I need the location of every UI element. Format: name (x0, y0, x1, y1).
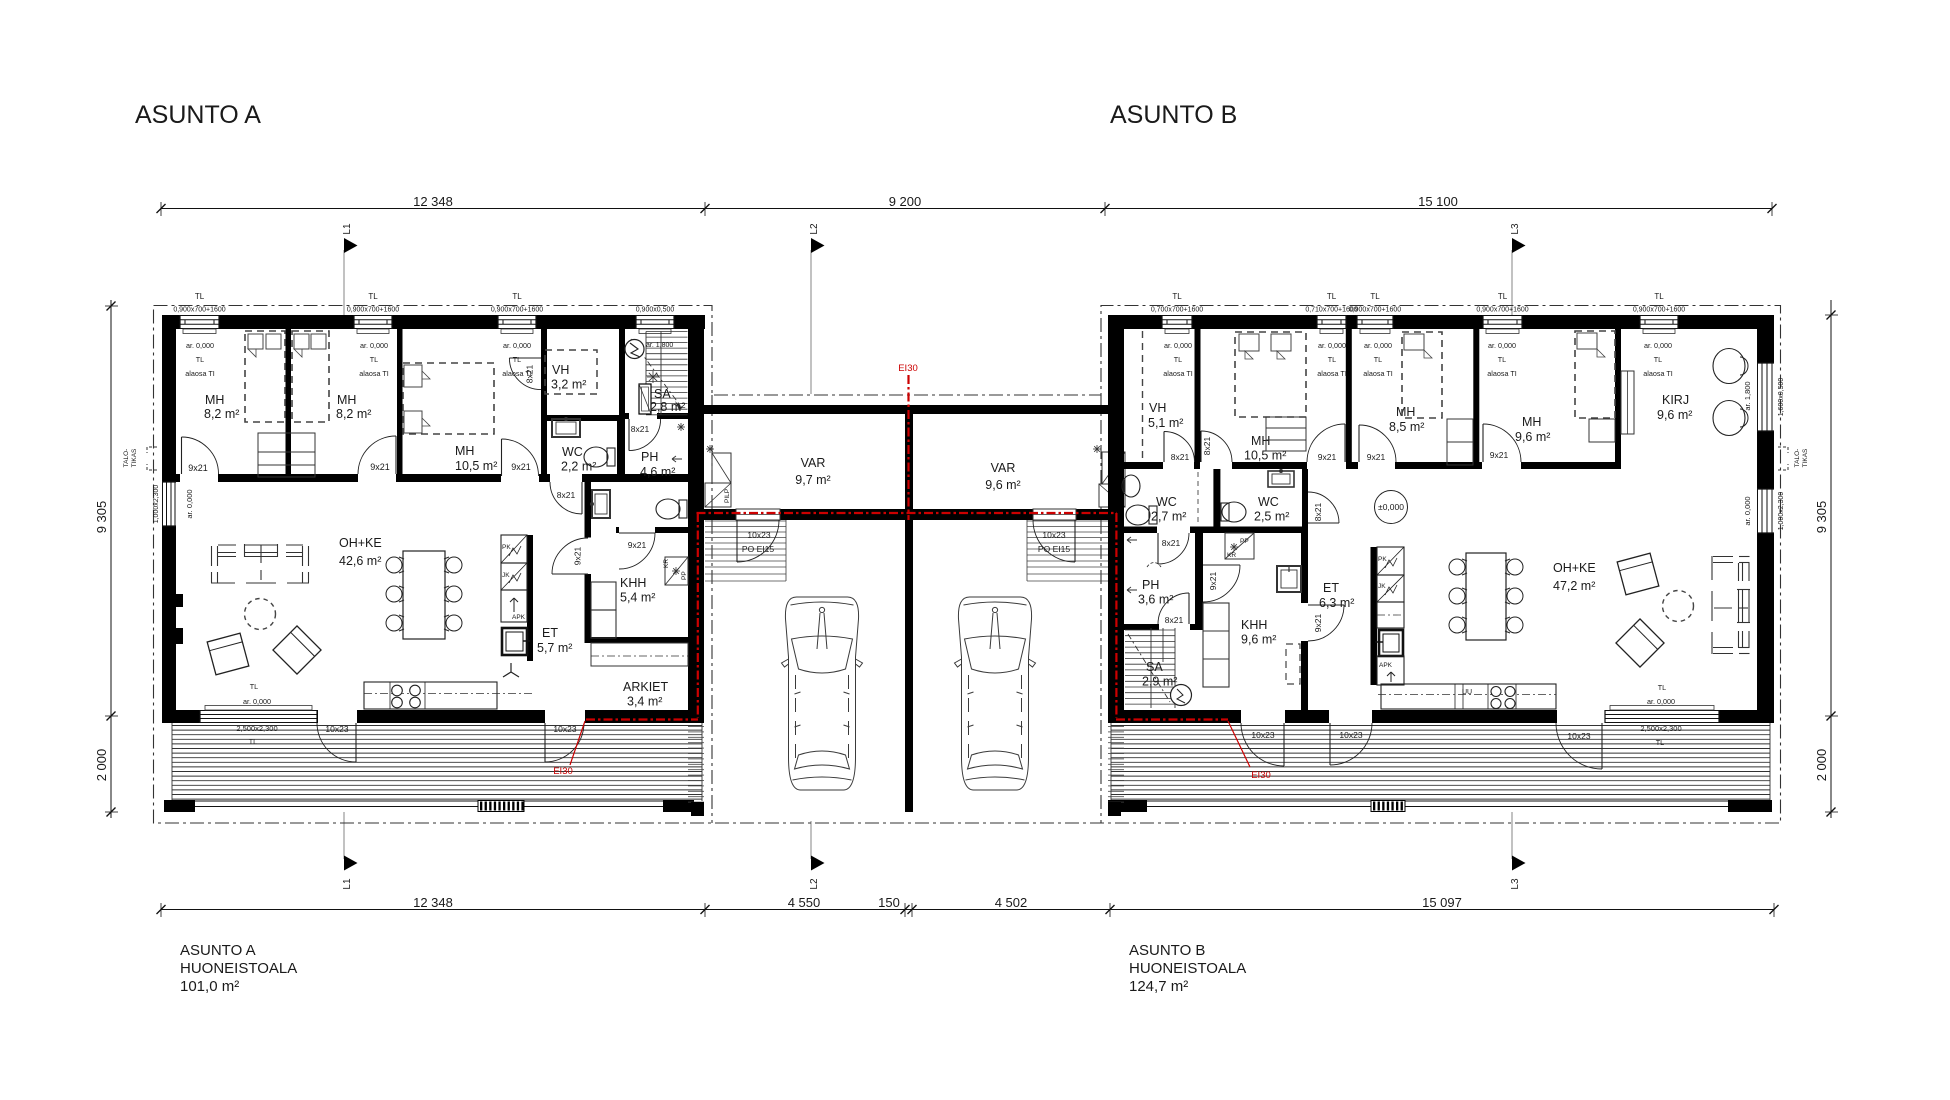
svg-text:9x21: 9x21 (1313, 614, 1323, 633)
svg-text:42,6 m²: 42,6 m² (339, 554, 381, 568)
svg-text:PP: PP (681, 571, 688, 580)
svg-text:L1: L1 (342, 878, 353, 890)
svg-text:MH: MH (205, 393, 224, 407)
svg-text:ar. 0,000: ar. 0,000 (1644, 341, 1672, 350)
svg-text:0,900x0,500: 0,900x0,500 (636, 307, 675, 314)
svg-text:5,7 m²: 5,7 m² (537, 641, 572, 655)
svg-text:2,9 m²: 2,9 m² (1142, 675, 1177, 689)
svg-text:6,3 m²: 6,3 m² (1319, 596, 1354, 610)
svg-text:SA: SA (654, 387, 671, 401)
svg-text:VAR: VAR (991, 461, 1016, 475)
svg-text:PH: PH (641, 450, 658, 464)
svg-text:ar. 1,800: ar. 1,800 (1743, 381, 1752, 410)
svg-text:4,6 m²: 4,6 m² (640, 465, 675, 479)
svg-text:10,5 m²: 10,5 m² (455, 459, 497, 473)
svg-text:9x21: 9x21 (511, 462, 531, 472)
svg-text:9x21: 9x21 (573, 547, 583, 566)
svg-text:WC: WC (1156, 495, 1177, 509)
svg-text:9x21: 9x21 (188, 463, 208, 473)
svg-text:TIKAS: TIKAS (131, 448, 138, 467)
svg-text:PILP: PILP (724, 489, 731, 503)
svg-text:TL: TL (1656, 738, 1664, 747)
svg-text:WC: WC (562, 445, 583, 459)
svg-text:8,5 m²: 8,5 m² (1389, 420, 1424, 434)
svg-text:8x21: 8x21 (557, 490, 576, 500)
svg-text:0,900x700+1600: 0,900x700+1600 (173, 307, 225, 314)
svg-text:TL: TL (512, 292, 522, 301)
svg-text:TL: TL (195, 292, 205, 301)
svg-text:TL: TL (368, 292, 378, 301)
svg-text:UU: UU (1462, 689, 1472, 696)
svg-text:4 502: 4 502 (995, 895, 1028, 910)
svg-text:OH+KE: OH+KE (339, 536, 382, 550)
svg-text:TL: TL (370, 355, 378, 364)
svg-text:ar. 0,000: ar. 0,000 (243, 697, 271, 706)
svg-text:8,2 m²: 8,2 m² (204, 407, 239, 421)
svg-text:9,6 m²: 9,6 m² (1515, 430, 1550, 444)
svg-text:PK: PK (502, 544, 511, 551)
svg-text:2 000: 2 000 (1814, 749, 1829, 782)
svg-text:8x21: 8x21 (1171, 452, 1190, 462)
svg-text:124,7 m²: 124,7 m² (1129, 978, 1188, 995)
svg-text:PP: PP (1240, 538, 1249, 545)
svg-text:ar. 0,000: ar. 0,000 (1488, 341, 1516, 350)
svg-text:APK: APK (512, 614, 526, 621)
svg-text:TL: TL (1498, 292, 1508, 301)
svg-text:9x21: 9x21 (1490, 450, 1509, 460)
svg-text:0,900x700+1600: 0,900x700+1600 (1349, 307, 1401, 314)
svg-text:5,1 m²: 5,1 m² (1148, 416, 1183, 430)
svg-text:TL: TL (1174, 355, 1182, 364)
svg-text:9,6 m²: 9,6 m² (985, 478, 1020, 492)
svg-text:alaosa TI: alaosa TI (359, 369, 388, 378)
svg-text:alaosa TI: alaosa TI (1643, 369, 1672, 378)
svg-text:ar. 0,000: ar. 0,000 (1647, 697, 1675, 706)
svg-text:3,4 m²: 3,4 m² (627, 695, 662, 709)
svg-text:0,700x700+1600: 0,700x700+1600 (1151, 307, 1203, 314)
svg-text:ar. 0,000: ar. 0,000 (1164, 341, 1192, 350)
svg-text:2,500x2,300: 2,500x2,300 (1640, 724, 1681, 733)
svg-text:ar. 0,000: ar. 0,000 (1743, 496, 1752, 525)
svg-text:2 000: 2 000 (94, 749, 109, 782)
svg-text:9x21: 9x21 (1367, 452, 1386, 462)
svg-text:WC: WC (1258, 495, 1279, 509)
svg-text:ASUNTO A: ASUNTO A (180, 942, 256, 959)
svg-text:ET: ET (542, 626, 558, 640)
svg-text:8,2 m²: 8,2 m² (336, 407, 371, 421)
svg-text:8x21: 8x21 (1202, 437, 1212, 456)
svg-text:JK: JK (1378, 583, 1386, 590)
svg-text:15 097: 15 097 (1422, 895, 1462, 910)
svg-text:ar. 0,000: ar. 0,000 (1364, 341, 1392, 350)
svg-text:0,900x700+1600: 0,900x700+1600 (1476, 307, 1528, 314)
svg-text:ASUNTO A: ASUNTO A (135, 101, 261, 129)
svg-text:VH: VH (1149, 401, 1166, 415)
svg-text:KHH: KHH (1241, 618, 1267, 632)
svg-text:MH: MH (1522, 415, 1541, 429)
svg-text:PK: PK (1378, 556, 1387, 563)
svg-text:L1: L1 (342, 223, 353, 235)
svg-text:EI30: EI30 (1251, 770, 1271, 781)
svg-text:L2: L2 (809, 223, 820, 235)
svg-text:10x23: 10x23 (747, 530, 770, 540)
svg-text:ARKIET: ARKIET (623, 680, 669, 694)
svg-text:ar. 0,000: ar. 0,000 (186, 341, 214, 350)
svg-text:KHH: KHH (620, 576, 646, 590)
svg-text:1,600x0,500: 1,600x0,500 (1778, 378, 1785, 417)
svg-text:TL: TL (1327, 292, 1337, 301)
svg-text:L3: L3 (1510, 878, 1521, 890)
svg-text:ar. 0,000: ar. 0,000 (1318, 341, 1346, 350)
svg-text:8x21: 8x21 (1165, 615, 1184, 625)
svg-text:TL: TL (1172, 292, 1182, 301)
svg-text:TL: TL (196, 355, 204, 364)
svg-text:9,6 m²: 9,6 m² (1241, 633, 1276, 647)
svg-text:1,000x2,300: 1,000x2,300 (1778, 492, 1785, 531)
svg-text:10x23: 10x23 (1567, 731, 1590, 741)
svg-text:ar. 0,000: ar. 0,000 (185, 489, 194, 518)
svg-text:TL: TL (513, 355, 521, 364)
svg-text:EI30: EI30 (553, 766, 573, 777)
svg-text:MH: MH (455, 444, 474, 458)
svg-text:9x21: 9x21 (370, 462, 390, 472)
svg-text:TL: TL (1498, 355, 1506, 364)
svg-text:alaosa TI: alaosa TI (185, 369, 214, 378)
svg-text:9,6 m²: 9,6 m² (1657, 408, 1692, 422)
svg-text:TL: TL (250, 682, 258, 691)
svg-text:VH: VH (552, 363, 569, 377)
svg-text:±0,000: ±0,000 (1378, 502, 1404, 512)
svg-text:HUONEISTOALA: HUONEISTOALA (1129, 960, 1246, 977)
svg-text:0,900x700+1600: 0,900x700+1600 (347, 307, 399, 314)
svg-text:12 348: 12 348 (413, 895, 453, 910)
svg-text:5,4 m²: 5,4 m² (620, 591, 655, 605)
svg-text:JK: JK (502, 572, 510, 579)
svg-text:TL: TL (1374, 355, 1382, 364)
svg-text:3,2 m²: 3,2 m² (551, 378, 586, 392)
svg-text:TL: TL (1654, 292, 1664, 301)
svg-text:alaosa TI: alaosa TI (1317, 369, 1346, 378)
svg-text:8x21: 8x21 (631, 424, 650, 434)
svg-text:47,2 m²: 47,2 m² (1553, 579, 1595, 593)
svg-text:2,8 m²: 2,8 m² (650, 400, 685, 414)
svg-text:0,900x700+1600: 0,900x700+1600 (1633, 307, 1685, 314)
svg-text:PO EI15: PO EI15 (1038, 544, 1070, 554)
svg-text:9 305: 9 305 (94, 501, 109, 534)
svg-text:PH: PH (1142, 578, 1159, 592)
svg-text:101,0 m²: 101,0 m² (180, 978, 239, 995)
svg-text:alaosa TI: alaosa TI (502, 369, 531, 378)
svg-text:ar. 0,000: ar. 0,000 (360, 341, 388, 350)
svg-text:SA: SA (1146, 660, 1163, 674)
svg-text:OH+KE: OH+KE (1553, 561, 1596, 575)
svg-text:10x23: 10x23 (1251, 730, 1274, 740)
svg-text:TL: TL (1654, 355, 1662, 364)
svg-text:alaosa TI: alaosa TI (1163, 369, 1192, 378)
svg-text:3,6 m²: 3,6 m² (1138, 593, 1173, 607)
svg-text:1,000x2,300: 1,000x2,300 (153, 485, 160, 524)
svg-text:0,900x700+1600: 0,900x700+1600 (491, 307, 543, 314)
svg-text:KR: KR (663, 559, 670, 568)
svg-text:150: 150 (878, 895, 900, 910)
svg-text:8x21: 8x21 (1313, 503, 1323, 522)
svg-text:ASUNTO B: ASUNTO B (1110, 101, 1237, 129)
svg-text:2,7 m²: 2,7 m² (1151, 510, 1186, 524)
svg-text:TALO-: TALO- (1794, 449, 1801, 468)
svg-text:TL: TL (249, 737, 257, 746)
svg-text:TL: TL (1370, 292, 1380, 301)
svg-text:10x23: 10x23 (553, 724, 576, 734)
svg-text:TL: TL (1658, 683, 1666, 692)
svg-text:EI30: EI30 (898, 363, 918, 374)
svg-text:9x21: 9x21 (1318, 452, 1337, 462)
svg-text:KR: KR (1227, 552, 1236, 559)
svg-text:L2: L2 (809, 878, 820, 890)
svg-text:2,5 m²: 2,5 m² (1254, 510, 1289, 524)
svg-text:TALO-: TALO- (123, 449, 130, 468)
svg-text:15 100: 15 100 (1418, 194, 1458, 209)
svg-text:MH: MH (1396, 405, 1415, 419)
svg-text:MH: MH (1251, 434, 1270, 448)
svg-text:ASUNTO B: ASUNTO B (1129, 942, 1205, 959)
svg-text:4 550: 4 550 (788, 895, 821, 910)
svg-text:PO EI15: PO EI15 (742, 544, 774, 554)
svg-text:ar. 0,000: ar. 0,000 (503, 341, 531, 350)
svg-text:10x23: 10x23 (1339, 730, 1362, 740)
svg-text:alaosa TI: alaosa TI (1487, 369, 1516, 378)
svg-text:TL: TL (1328, 355, 1336, 364)
svg-text:9,7 m²: 9,7 m² (795, 473, 830, 487)
svg-text:MH: MH (337, 393, 356, 407)
svg-text:9x21: 9x21 (1208, 572, 1218, 591)
svg-text:ET: ET (1323, 581, 1339, 595)
svg-text:10x23: 10x23 (1042, 530, 1065, 540)
svg-text:APK: APK (1379, 662, 1393, 669)
svg-text:10x23: 10x23 (325, 724, 348, 734)
svg-text:TIKAS: TIKAS (1802, 448, 1809, 467)
svg-text:8x21: 8x21 (1162, 538, 1181, 548)
svg-text:alaosa TI: alaosa TI (1363, 369, 1392, 378)
svg-text:9 200: 9 200 (889, 194, 922, 209)
svg-text:ar. 1,800: ar. 1,800 (646, 342, 673, 349)
svg-text:L3: L3 (1510, 223, 1521, 235)
svg-text:9 305: 9 305 (1814, 501, 1829, 534)
svg-text:VAR: VAR (801, 456, 826, 470)
svg-text:2,500x2,300: 2,500x2,300 (236, 724, 277, 733)
svg-text:HUONEISTOALA: HUONEISTOALA (180, 960, 297, 977)
svg-text:12 348: 12 348 (413, 194, 453, 209)
svg-text:KIRJ: KIRJ (1662, 393, 1689, 407)
svg-text:9x21: 9x21 (628, 540, 647, 550)
